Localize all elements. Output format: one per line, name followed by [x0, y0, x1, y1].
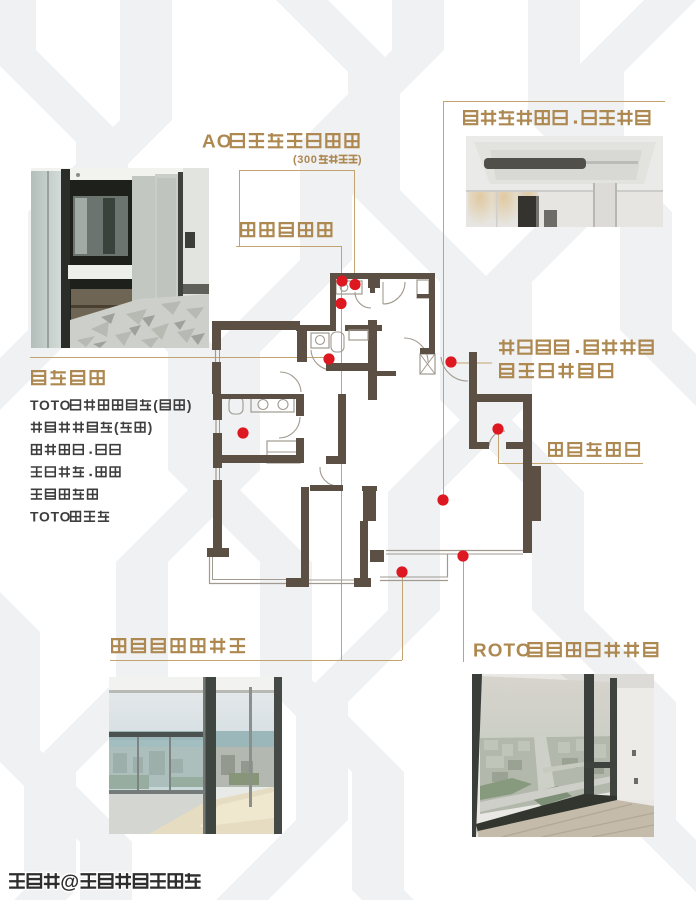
- svg-text:): ): [358, 154, 362, 166]
- svg-text:ROTO: ROTO: [473, 641, 532, 662]
- svg-text:@: @: [60, 871, 80, 893]
- svg-text:): ): [187, 398, 192, 413]
- svg-text:TOTO: TOTO: [30, 397, 71, 413]
- svg-text:TOTO: TOTO: [30, 508, 71, 524]
- svg-text:(: (: [153, 398, 158, 413]
- svg-text:): ): [148, 420, 153, 435]
- svg-text:AO: AO: [202, 132, 233, 153]
- svg-text:(: (: [114, 420, 119, 435]
- svg-text:(300: (300: [293, 154, 317, 166]
